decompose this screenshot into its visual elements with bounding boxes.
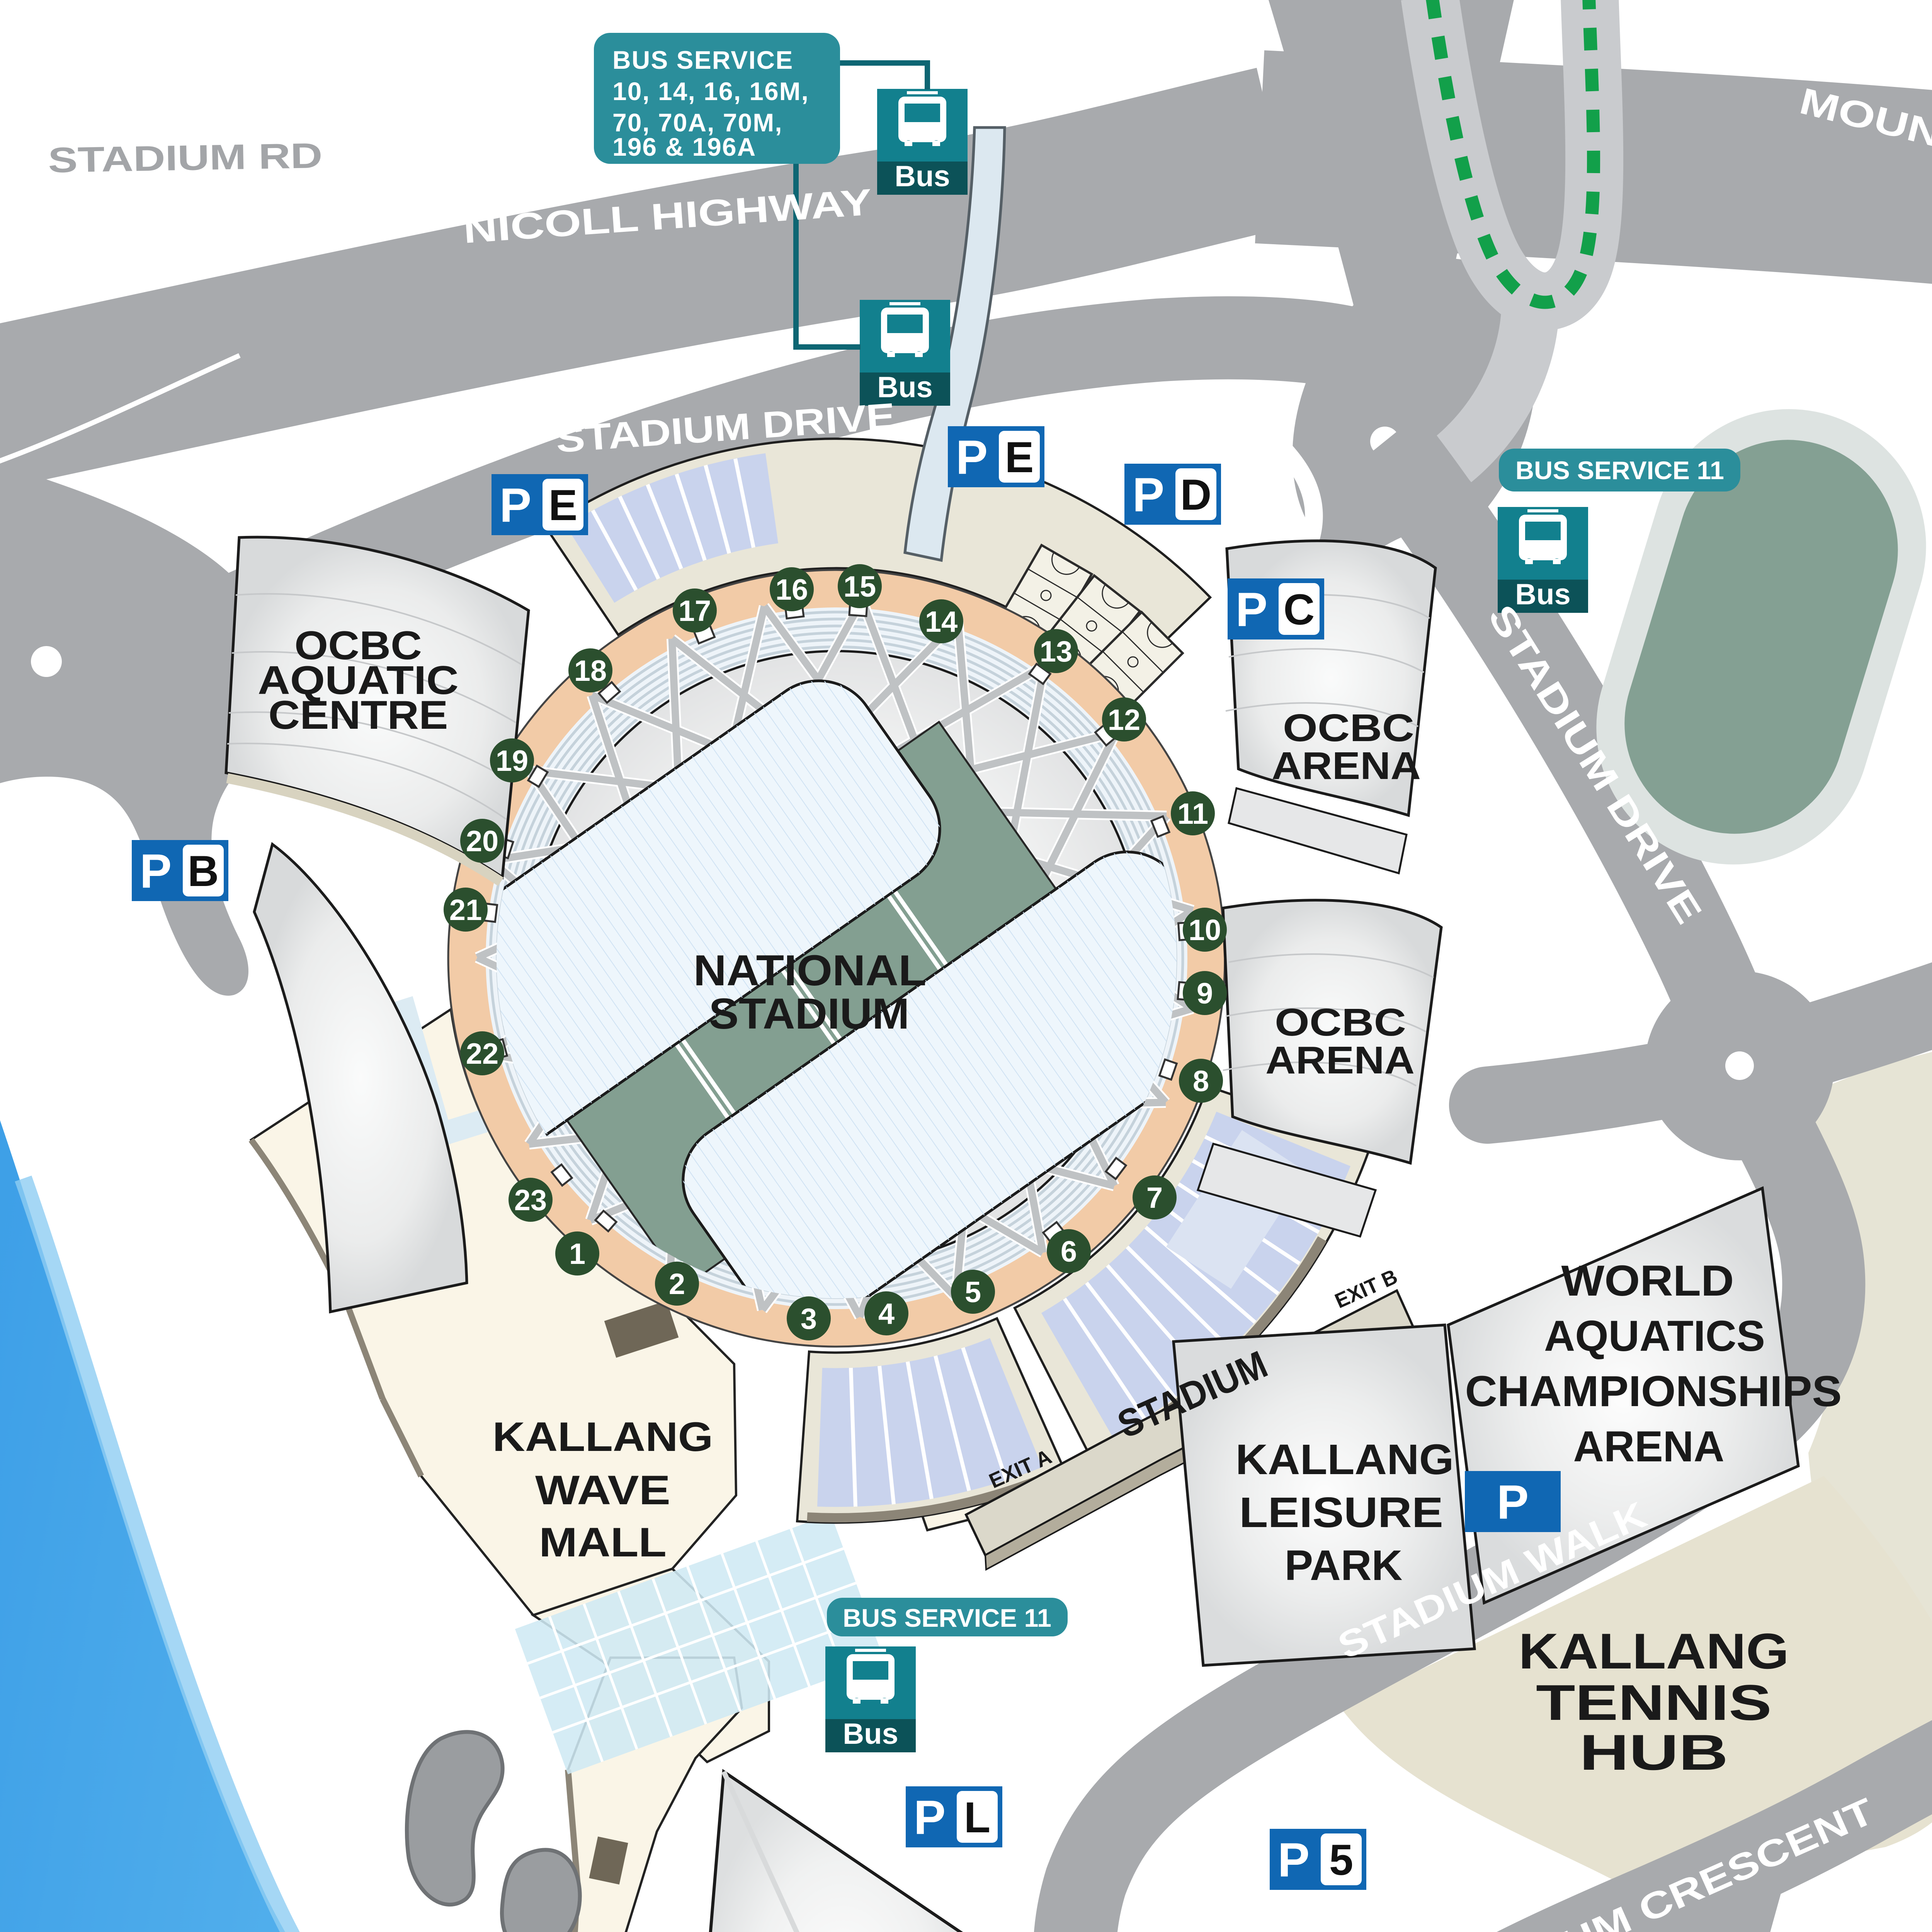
svg-text:D: D bbox=[1180, 471, 1212, 519]
svg-text:7: 7 bbox=[1146, 1182, 1163, 1214]
svg-text:TENNIS: TENNIS bbox=[1536, 1674, 1772, 1731]
svg-text:WORLD: WORLD bbox=[1561, 1257, 1734, 1305]
svg-text:19: 19 bbox=[496, 745, 529, 777]
svg-text:3: 3 bbox=[801, 1303, 817, 1335]
svg-text:20: 20 bbox=[466, 825, 499, 858]
svg-text:KALLANG: KALLANG bbox=[1236, 1436, 1454, 1483]
svg-text:STADIUM RD: STADIUM RD bbox=[48, 136, 323, 180]
svg-text:P: P bbox=[1133, 468, 1165, 522]
svg-text:11: 11 bbox=[1177, 798, 1208, 830]
svg-text:10: 10 bbox=[1189, 914, 1221, 947]
svg-text:ARENA: ARENA bbox=[1265, 1039, 1415, 1082]
svg-text:HUB: HUB bbox=[1580, 1724, 1728, 1781]
svg-text:P: P bbox=[1497, 1476, 1529, 1529]
svg-text:15: 15 bbox=[844, 570, 876, 603]
svg-text:9: 9 bbox=[1197, 977, 1213, 1010]
svg-text:LEISURE: LEISURE bbox=[1239, 1489, 1443, 1536]
svg-text:Bus: Bus bbox=[1515, 578, 1571, 611]
svg-text:CHAMPIONSHIPS: CHAMPIONSHIPS bbox=[1465, 1367, 1842, 1415]
svg-text:CENTRE: CENTRE bbox=[269, 693, 448, 738]
svg-text:196 & 196A: 196 & 196A bbox=[612, 133, 756, 161]
svg-text:P: P bbox=[914, 1791, 946, 1844]
svg-text:P: P bbox=[1236, 583, 1268, 636]
svg-text:5: 5 bbox=[1329, 1836, 1353, 1884]
svg-text:ARENA: ARENA bbox=[1272, 744, 1421, 787]
svg-text:BUS SERVICE: BUS SERVICE bbox=[612, 46, 793, 74]
svg-text:18: 18 bbox=[574, 655, 607, 687]
svg-text:21: 21 bbox=[449, 894, 482, 927]
svg-text:NATIONAL: NATIONAL bbox=[694, 946, 927, 995]
svg-text:ARENA: ARENA bbox=[1573, 1422, 1725, 1471]
svg-text:17: 17 bbox=[679, 595, 711, 628]
svg-text:12: 12 bbox=[1108, 704, 1141, 736]
svg-text:23: 23 bbox=[514, 1184, 547, 1217]
svg-text:P: P bbox=[500, 479, 532, 532]
svg-text:1: 1 bbox=[569, 1238, 585, 1270]
svg-text:22: 22 bbox=[466, 1037, 499, 1070]
svg-text:P: P bbox=[1278, 1833, 1310, 1887]
svg-text:KALLANG: KALLANG bbox=[1519, 1623, 1789, 1679]
svg-text:KALLANG: KALLANG bbox=[493, 1413, 713, 1460]
svg-text:WAVE: WAVE bbox=[535, 1467, 670, 1513]
svg-text:6: 6 bbox=[1061, 1235, 1077, 1268]
svg-text:13: 13 bbox=[1040, 635, 1073, 668]
svg-text:BUS SERVICE 11: BUS SERVICE 11 bbox=[1515, 456, 1724, 485]
svg-text:STADIUM: STADIUM bbox=[709, 990, 910, 1038]
svg-text:Bus: Bus bbox=[895, 160, 950, 193]
svg-text:P: P bbox=[956, 431, 988, 484]
svg-text:BUS SERVICE 11: BUS SERVICE 11 bbox=[843, 1604, 1051, 1632]
svg-text:2: 2 bbox=[669, 1268, 685, 1301]
svg-text:C: C bbox=[1284, 585, 1315, 634]
svg-text:4: 4 bbox=[878, 1298, 895, 1330]
svg-text:E: E bbox=[1005, 433, 1034, 481]
svg-text:16: 16 bbox=[776, 573, 808, 606]
svg-text:5: 5 bbox=[965, 1276, 981, 1309]
svg-text:PARK: PARK bbox=[1285, 1542, 1403, 1589]
svg-text:14: 14 bbox=[925, 605, 958, 638]
svg-text:MALL: MALL bbox=[539, 1519, 667, 1565]
svg-text:AQUATICS: AQUATICS bbox=[1544, 1312, 1765, 1360]
svg-text:OCBC: OCBC bbox=[1283, 706, 1414, 750]
svg-text:10, 14, 16, 16M,: 10, 14, 16, 16M, bbox=[612, 77, 809, 105]
svg-text:OCBC: OCBC bbox=[1275, 1001, 1406, 1044]
svg-text:P: P bbox=[140, 845, 172, 898]
svg-text:L: L bbox=[964, 1793, 990, 1842]
svg-text:B: B bbox=[188, 847, 219, 895]
svg-text:E: E bbox=[549, 481, 578, 529]
svg-text:Bus: Bus bbox=[843, 1718, 898, 1750]
svg-text:8: 8 bbox=[1193, 1065, 1209, 1098]
